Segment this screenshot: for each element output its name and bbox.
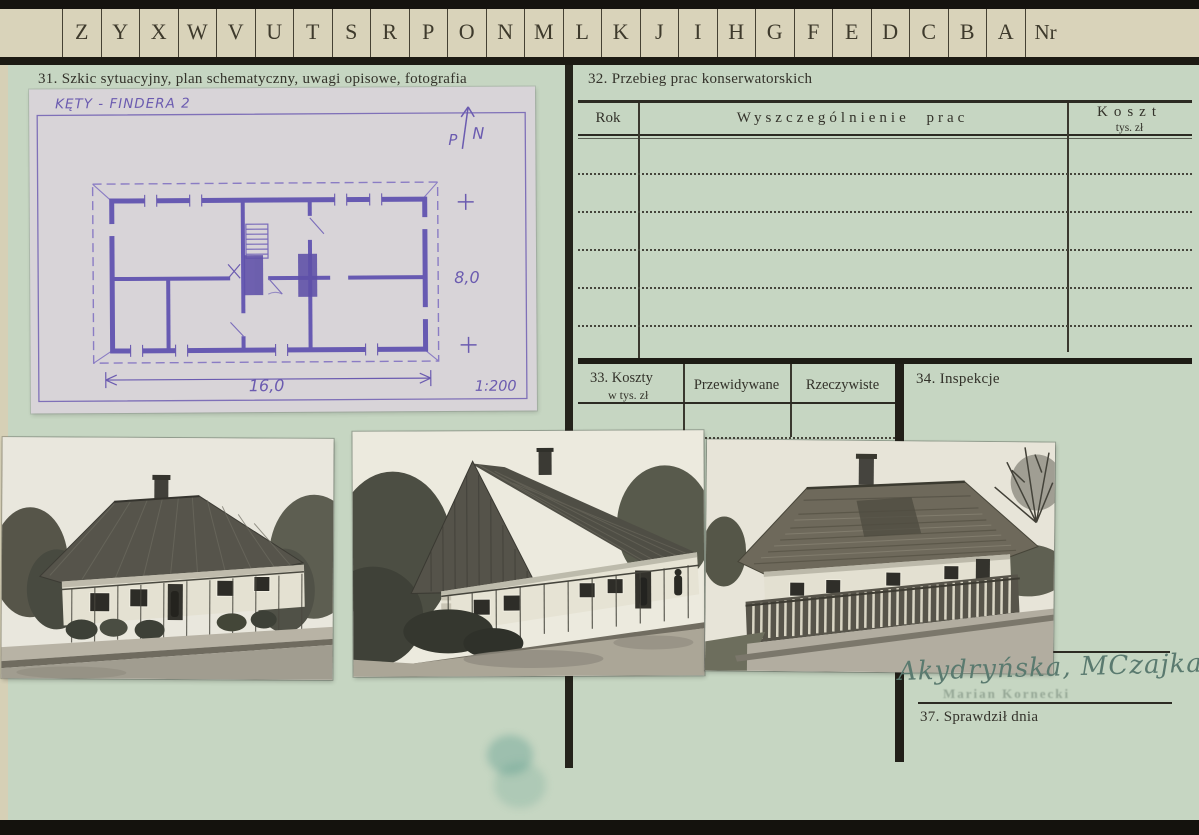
dim-bottom-label: 16,0 bbox=[249, 376, 285, 395]
scanned-heritage-record-card: ZYXWVUTSRPONMLKJIHGFEDCBA Nr 31. Szkic s… bbox=[0, 0, 1199, 835]
tab-letter-I: I bbox=[678, 9, 717, 57]
signature-line-lower bbox=[918, 702, 1172, 704]
section33-col-expected: Przewidywane bbox=[683, 377, 790, 394]
works-table-empty-row-line bbox=[578, 173, 1192, 175]
works-table-empty-row-line bbox=[578, 211, 1192, 213]
works-table-empty-row-line bbox=[578, 287, 1192, 289]
tab-letter-T: T bbox=[293, 9, 332, 57]
floor-plan-drawing: KĘTY - FINDERA 2 bbox=[29, 86, 537, 413]
works-table-empty-row-line bbox=[578, 325, 1192, 327]
tab-letter-F: F bbox=[794, 9, 833, 57]
window-marks bbox=[108, 193, 429, 357]
tab-letter-X: X bbox=[139, 9, 178, 57]
alphabet-tab-strip: ZYXWVUTSRPONMLKJIHGFEDCBA Nr bbox=[0, 9, 1199, 57]
sketch-caption: KĘTY - FINDERA 2 bbox=[55, 96, 191, 113]
tab-letter-P: P bbox=[409, 9, 448, 57]
works-col-koszt-unit: tys. zł bbox=[1069, 122, 1190, 134]
section33-unit: w tys. zł bbox=[608, 388, 648, 403]
photo-2-image bbox=[352, 430, 704, 677]
tab-letter-A: A bbox=[986, 9, 1025, 57]
section33-title: 33. Koszty bbox=[590, 370, 653, 387]
outer-walls bbox=[112, 199, 426, 351]
tab-letter-J: J bbox=[640, 9, 679, 57]
costs-vline-1 bbox=[683, 364, 685, 437]
works-header-rule1 bbox=[578, 134, 1192, 136]
tab-strip-cells: ZYXWVUTSRPONMLKJIHGFEDCBA bbox=[62, 9, 1025, 57]
north-p-label: P bbox=[448, 131, 458, 149]
tab-letter-H: H bbox=[717, 9, 756, 57]
tab-letter-N: N bbox=[486, 9, 525, 57]
photo-1-house-corner-view bbox=[1, 437, 333, 680]
interior-walls bbox=[112, 199, 426, 351]
tab-strip-left-spacer bbox=[0, 9, 62, 57]
site-sketch-paper: KĘTY - FINDERA 2 bbox=[29, 86, 537, 413]
stove-blocks bbox=[244, 254, 317, 297]
tab-letter-U: U bbox=[255, 9, 294, 57]
tab-letter-Z: Z bbox=[62, 9, 101, 57]
works-col-prace: Wyszczególnienie prac bbox=[650, 110, 1055, 127]
tab-nr-cell: Nr bbox=[1025, 9, 1095, 57]
tab-letter-V: V bbox=[216, 9, 255, 57]
tab-letter-R: R bbox=[370, 9, 409, 57]
costs-vline-2 bbox=[790, 364, 792, 437]
section34-title: 34. Inspekcje bbox=[916, 371, 1000, 388]
rule-under-tabs bbox=[0, 57, 1199, 65]
works-col-koszt: Koszt bbox=[1069, 104, 1190, 121]
works-col-rok: Rok bbox=[578, 110, 638, 127]
corner-ties bbox=[93, 182, 439, 363]
staircase bbox=[246, 224, 268, 258]
scan-edge-top bbox=[0, 0, 1199, 9]
tab-letter-K: K bbox=[601, 9, 640, 57]
section32-title: 32. Przebieg prac konserwatorskich bbox=[588, 71, 812, 88]
works-vline-koszt bbox=[1067, 103, 1069, 352]
tab-letter-E: E bbox=[832, 9, 871, 57]
eaves-outline bbox=[93, 182, 439, 363]
tab-letter-C: C bbox=[909, 9, 948, 57]
tab-letter-G: G bbox=[755, 9, 794, 57]
tab-letter-M: M bbox=[524, 9, 563, 57]
faint-name-stamp: Marian Kornecki bbox=[943, 686, 1070, 702]
tab-letter-D: D bbox=[871, 9, 910, 57]
scale-label: 1:200 bbox=[475, 379, 517, 395]
works-header-rule2 bbox=[578, 138, 1192, 139]
costs-header-rule bbox=[578, 402, 895, 404]
tab-letter-L: L bbox=[563, 9, 602, 57]
works-table-empty-row-line bbox=[578, 249, 1192, 251]
scan-edge-bottom bbox=[0, 820, 1199, 835]
photo-1-image bbox=[1, 437, 333, 680]
section37-title: 37. Sprawdził dnia bbox=[920, 709, 1038, 726]
ink-smudge-2 bbox=[494, 762, 546, 808]
photo-3-image bbox=[705, 439, 1055, 673]
tab-letter-O: O bbox=[447, 9, 486, 57]
section31-title: 31. Szkic sytuacyjny, plan schematyczny,… bbox=[38, 71, 467, 88]
tab-letter-W: W bbox=[178, 9, 217, 57]
section33-col-actual: Rzeczywiste bbox=[790, 377, 895, 394]
photo-3-house-picket-fence-view bbox=[705, 439, 1055, 673]
tab-letter-S: S bbox=[332, 9, 371, 57]
tab-letter-Y: Y bbox=[101, 9, 140, 57]
dim-right-label: 8,0 bbox=[454, 268, 480, 287]
works-table-bottom-rule bbox=[578, 358, 1192, 364]
works-table-top-rule bbox=[578, 100, 1192, 103]
photo-2-house-gable-view bbox=[352, 430, 704, 677]
north-n-label: N bbox=[472, 124, 484, 143]
works-vline-rok bbox=[638, 103, 640, 358]
tab-letter-B: B bbox=[948, 9, 987, 57]
